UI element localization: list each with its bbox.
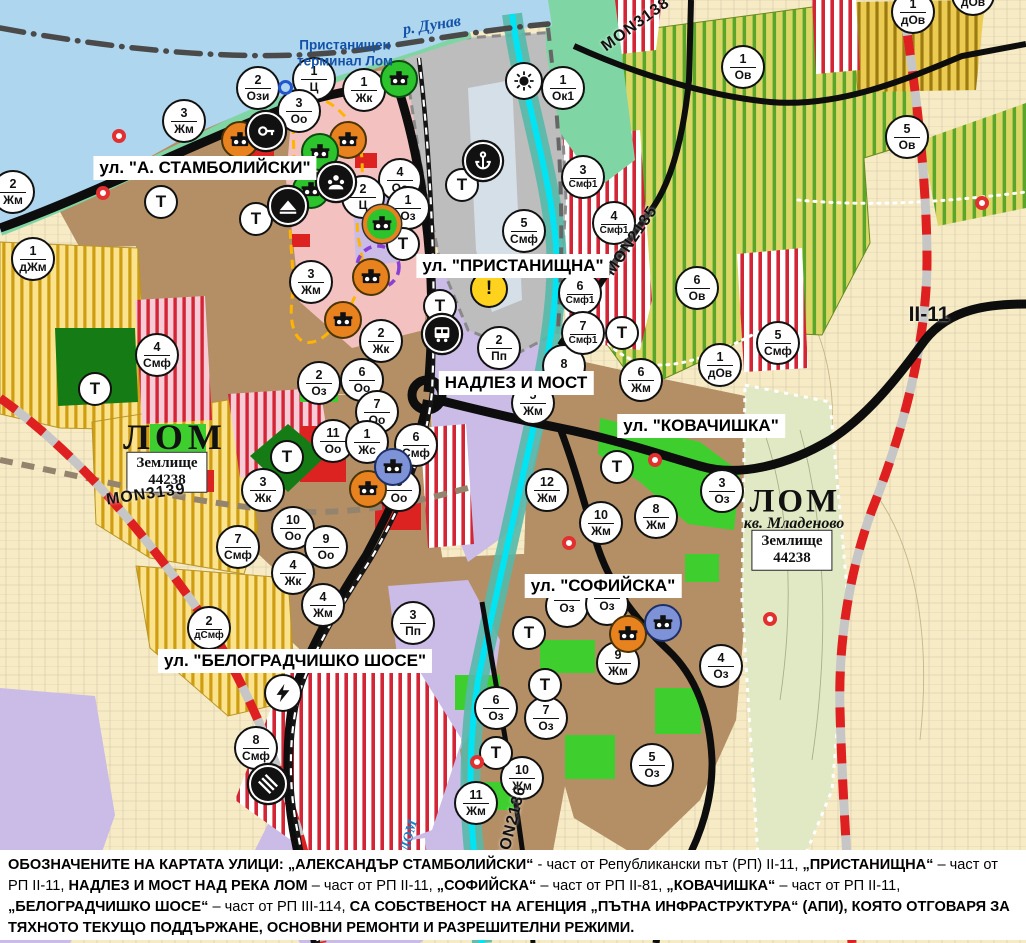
note-bold-segment: „ПРИСТАНИЩНА“ bbox=[802, 857, 933, 873]
street-label: ул. "СОФИЙСКА" bbox=[525, 574, 682, 598]
road-name-label: MON2135 bbox=[602, 203, 662, 279]
street-label: ул. "БЕЛОГРАДЧИШКО ШОСЕ" bbox=[158, 649, 432, 673]
note-segment: – част от РП III-114, bbox=[208, 899, 349, 915]
street-label: НАДЛЕЗ И МОСТ bbox=[439, 371, 594, 395]
labels-layer: ул. "А. СТАМБОЛИЙСКИ"ул. "ПРИСТАНИЩНА"НА… bbox=[0, 0, 1026, 943]
road-name-label: MON3139 bbox=[105, 481, 187, 510]
road-name-big-label: II-11 bbox=[909, 303, 950, 327]
street-label: ул. "А. СТАМБОЛИЙСКИ" bbox=[93, 156, 316, 180]
road-name-label: MON3138 bbox=[598, 0, 673, 56]
street-label: ул. "КОВАЧИШКА" bbox=[617, 414, 785, 438]
note-segment: – част от РП II-11, bbox=[775, 878, 900, 894]
landbox-label: Землище 44238 bbox=[751, 530, 832, 571]
note-segment: – част от РП II-11, bbox=[308, 878, 437, 894]
river-name-label: р. Дунав bbox=[402, 13, 463, 40]
port-name-label: Пристанищен терминал Лом bbox=[297, 37, 393, 68]
note-bold-segment: „СОФИЙСКА“ bbox=[437, 878, 537, 894]
bottom-note: ОБОЗНАЧЕНИТЕ НА КАРТАТА УЛИЦИ: „АЛЕКСАНД… bbox=[0, 850, 1026, 940]
zoning-map: 2Жм1дЖм3Жм2Ози1Ц3Оо1Жк4Оо2Ц1Оз3Жм2Жк4Смф… bbox=[0, 0, 1026, 943]
note-bold-segment: „БЕЛОГРАДЧИШКО ШОСЕ“ bbox=[8, 899, 208, 915]
note-segment: - част от Републикански път (РП) II-11, bbox=[533, 857, 802, 873]
note-bold-segment: „КОВАЧИШКА“ bbox=[666, 878, 775, 894]
note-segment: – част от РП II-81, bbox=[536, 878, 666, 894]
street-label: ул. "ПРИСТАНИЩНА" bbox=[416, 254, 609, 278]
note-bold-segment: ОБОЗНАЧЕНИТЕ НА КАРТАТА УЛИЦИ: „АЛЕКСАНД… bbox=[8, 857, 533, 873]
river-name2-label: ЛОМ bbox=[398, 818, 422, 853]
note-bold-segment: НАДЛЕЗ И МОСТ НАД РЕКА ЛОМ bbox=[69, 878, 308, 894]
